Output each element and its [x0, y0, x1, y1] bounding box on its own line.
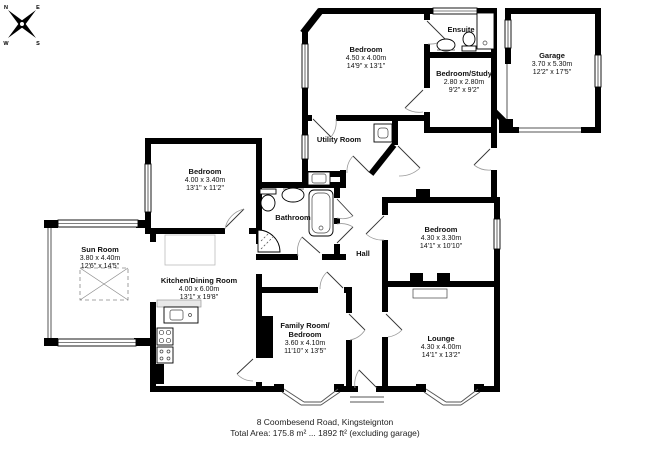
room-dim-imperial: 13'1" x 11'2": [185, 185, 225, 193]
room-dim-imperial: 14'9" x 13'1": [346, 63, 386, 71]
door-bedroom-right: [366, 216, 384, 240]
room-dim-metric: 3.70 x 5.30m: [532, 61, 572, 69]
kitchen-sink-icon: [164, 307, 198, 323]
room-name: Utility Room: [317, 136, 361, 145]
room-label-hall: Hall: [356, 250, 370, 259]
room-name: Bedroom: [346, 46, 386, 55]
door-hall-lobby: [398, 146, 420, 176]
room-name: Kitchen/Dining Room: [161, 277, 237, 286]
door-study: [405, 90, 423, 112]
window-utility: [302, 135, 308, 159]
door-cupboard-2: [337, 224, 353, 243]
window-garage-left: [505, 20, 511, 48]
room-dim-imperial: 9'2" x 9'2": [436, 87, 492, 95]
garage-door: [519, 128, 581, 132]
room-dim-metric: 4.50 x 4.00m: [346, 55, 386, 63]
room-name: Garage: [532, 52, 572, 61]
window-sunroom-top: [58, 220, 138, 227]
room-name: Bedroom/Study: [436, 70, 492, 79]
stove-icon: [157, 328, 173, 345]
floorplan: Bedroom 4.50 x 4.00m 14'9" x 13'1" Ensui…: [0, 0, 650, 450]
toilet-bathroom-icon: [260, 189, 276, 211]
room-label-ensuite: Ensuite: [447, 26, 474, 35]
door-bedroom-left: [225, 209, 244, 229]
shower-ensuite-icon: [477, 13, 494, 49]
bay-window-family: [282, 389, 340, 405]
room-label-bedroom-study: Bedroom/Study 2.80 x 2.80m 9'2" x 9'2": [436, 70, 492, 95]
room-dim-metric: 4.30 x 4.00m: [421, 344, 461, 352]
door-family-corridor: [349, 314, 365, 340]
compass-west-label: W: [3, 41, 9, 46]
room-name-line2: Bedroom: [280, 331, 329, 340]
window-sunroom-left: [48, 228, 51, 338]
room-dim-metric: 4.00 x 3.40m: [185, 177, 225, 185]
compass-rose-icon: N E S W: [0, 0, 44, 46]
compass-east-label: E: [36, 5, 40, 11]
room-label-bedroom-left: Bedroom 4.00 x 3.40m 13'1" x 11'2": [185, 168, 225, 193]
footer: 8 Coombesend Road, Kingsteignton Total A…: [230, 417, 419, 440]
water-tank-icon: [308, 172, 330, 185]
ceiling-line: [165, 235, 215, 265]
room-dim-imperial: 13'1" x 19'8": [161, 294, 237, 302]
room-name: Bedroom: [420, 226, 462, 235]
window-bedroom-top-leftwall: [302, 44, 308, 88]
window-bedroom-left: [145, 164, 151, 212]
fireplace-lounge-icon: [413, 289, 447, 298]
room-name: Ensuite: [447, 26, 474, 35]
address-text: 8 Coombesend Road, Kingsteignton: [230, 417, 419, 428]
skylight-icon: [80, 268, 128, 300]
room-label-bedroom-right: Bedroom 4.30 x 3.30m 14'1" x 10'10": [420, 226, 462, 251]
room-dim-metric: 3.60 x 4.10m: [280, 340, 329, 348]
room-label-garage: Garage 3.70 x 5.30m 12'2" x 17'5": [532, 52, 572, 77]
room-name: Lounge: [421, 335, 461, 344]
door-cupboard-1: [337, 199, 353, 219]
bathtub-icon: [309, 190, 333, 236]
total-area-text: Total Area: 175.8 m² ... 1892 ft² (exclu…: [230, 428, 419, 439]
sink-ensuite-icon: [437, 39, 455, 51]
door-utility-hall: [347, 156, 369, 173]
sink-bathroom-icon: [282, 188, 304, 202]
door-family-hall-top: [320, 272, 343, 289]
sink-utility-icon: [374, 124, 392, 142]
room-dim-metric: 3.80 x 4.40m: [80, 255, 120, 263]
front-door-steps: [350, 397, 384, 402]
compass-south-label: S: [36, 41, 40, 46]
door-lounge: [386, 314, 402, 337]
window-bedroom-top-topwall: [433, 8, 477, 14]
window-sunroom-bottom: [58, 339, 136, 346]
room-dim-metric: 2.80 x 2.80m: [436, 79, 492, 87]
room-name: Bathroom: [275, 214, 310, 223]
toilet-ensuite-icon: [462, 32, 476, 51]
shower-bathroom-icon: [258, 230, 280, 252]
room-dim-imperial: 12'2" x 17'5": [532, 69, 572, 77]
door-back: [474, 149, 491, 170]
room-label-bathroom: Bathroom: [275, 214, 310, 223]
window-bedroom-right: [494, 219, 500, 249]
room-label-sun-room: Sun Room 3.80 x 4.40m 12'6" x 14'5": [80, 246, 120, 271]
appliance-icon: [157, 347, 173, 363]
bay-window-lounge: [424, 389, 480, 405]
room-label-utility: Utility Room: [317, 136, 361, 145]
room-name: Bedroom: [185, 168, 225, 177]
room-dim-metric: 4.30 x 3.30m: [420, 235, 462, 243]
room-dim-imperial: 14'1" x 10'10": [420, 243, 462, 251]
door-front: [355, 370, 377, 388]
window-garage-right: [595, 55, 601, 87]
room-dim-imperial: 12'6" x 14'5": [80, 263, 120, 271]
room-name: Hall: [356, 250, 370, 259]
room-dim-imperial: 11'10" x 13'5": [280, 348, 329, 356]
room-dim-imperial: 14'1" x 13'2": [421, 352, 461, 360]
door-family-kitchen: [237, 359, 253, 381]
room-label-family-room: Family Room/ Bedroom 3.60 x 4.10m 11'10"…: [280, 322, 329, 356]
room-label-kitchen: Kitchen/Dining Room 4.00 x 6.00m 13'1" x…: [161, 277, 237, 302]
room-dim-metric: 4.00 x 6.00m: [161, 286, 237, 294]
door-bathroom: [297, 237, 320, 256]
room-name: Sun Room: [80, 246, 120, 255]
compass-north-label: N: [4, 5, 8, 11]
room-label-bedroom-top: Bedroom 4.50 x 4.00m 14'9" x 13'1": [346, 46, 386, 71]
room-label-lounge: Lounge 4.30 x 4.00m 14'1" x 13'2": [421, 335, 461, 360]
